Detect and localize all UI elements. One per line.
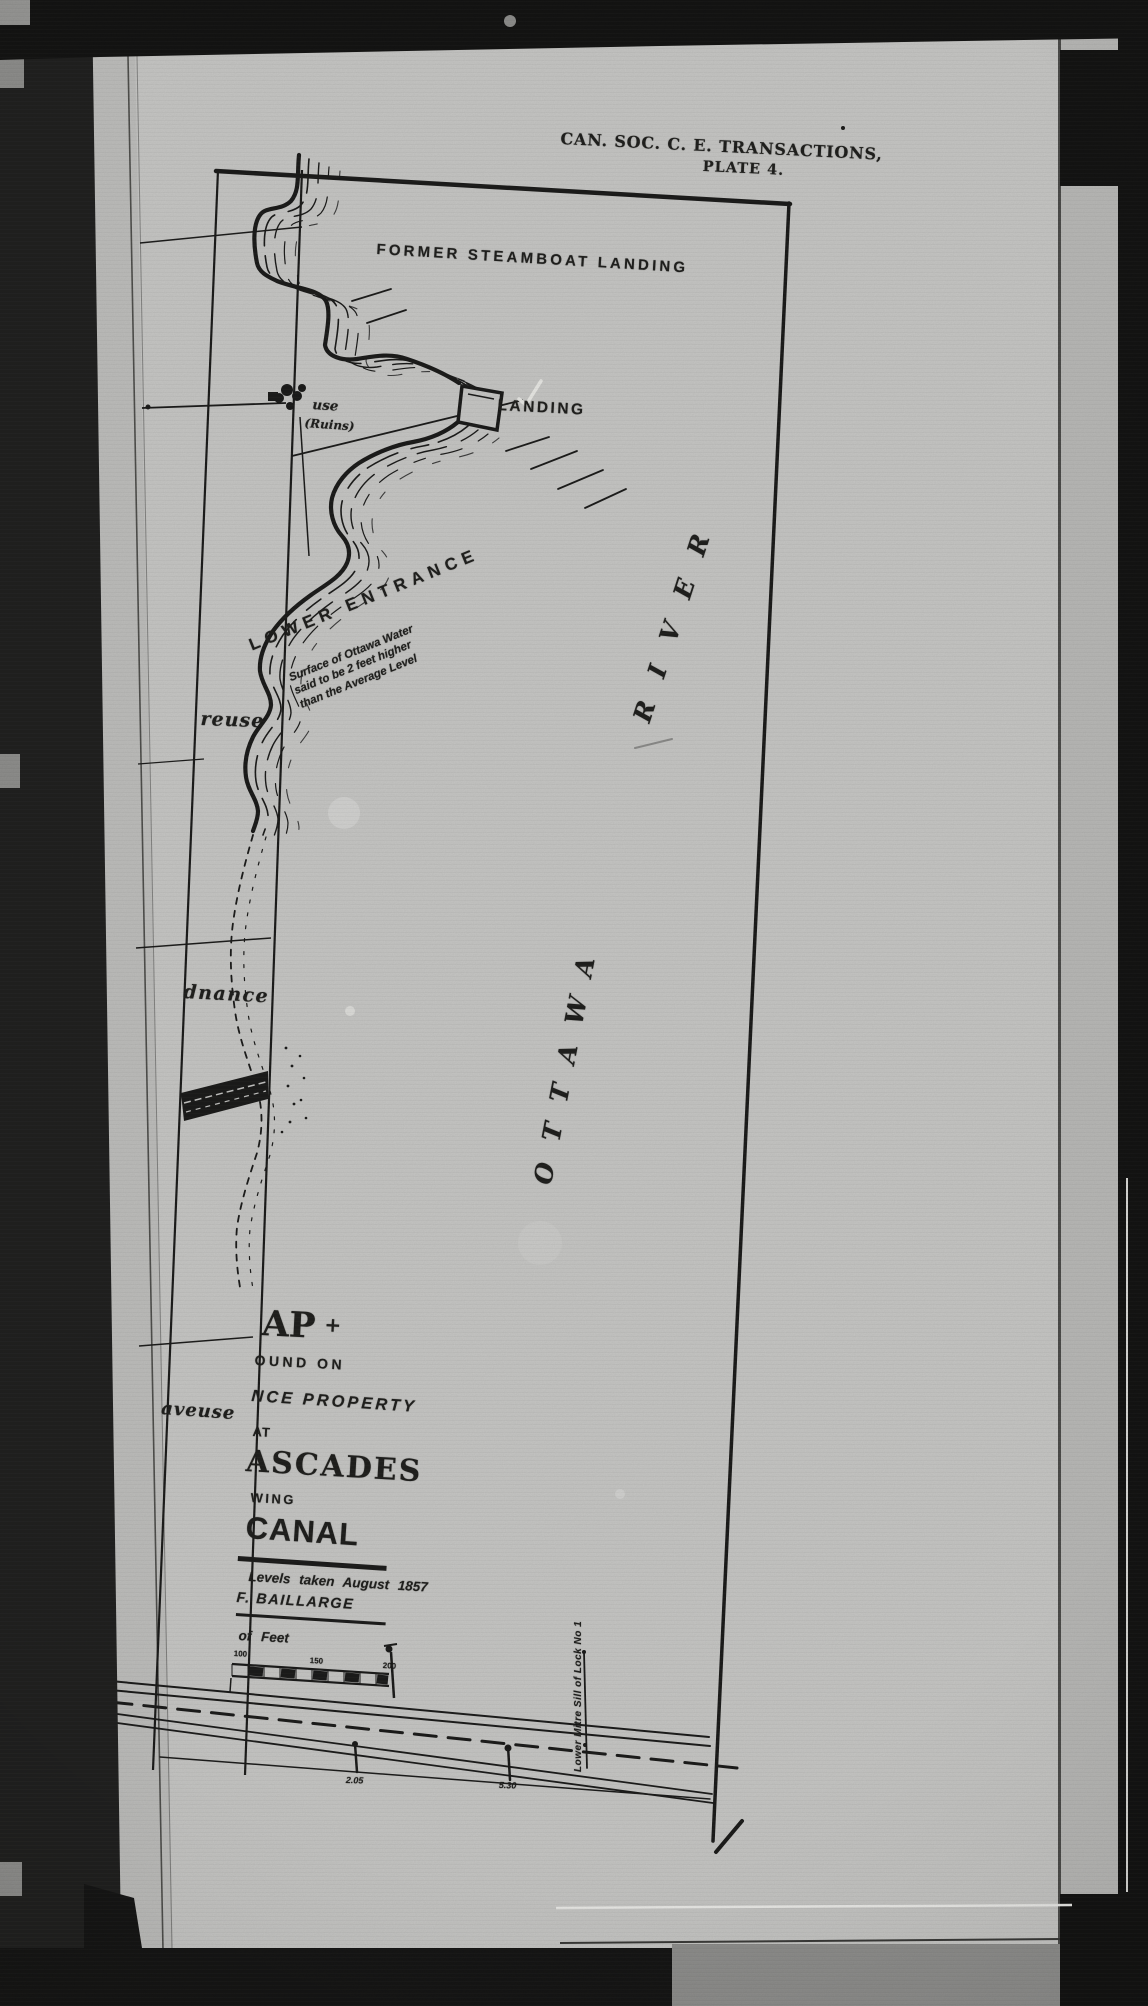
title-canal: CANAL [245, 1510, 361, 1553]
label-cutoff-1: reuse [200, 708, 264, 732]
scanned-map-page: CAN. SOC. C. E. TRANSACTIONS, PLATE 4. F… [0, 0, 1148, 2006]
scale-tick-label-2: 150 [310, 1656, 324, 1666]
scale-tick-label-1: 100 [234, 1649, 248, 1659]
level-figure-1: 2.05 [346, 1775, 364, 1786]
title-map-word: AP+ [261, 1303, 342, 1348]
level-figure-2: 5.30 [499, 1780, 517, 1791]
label-lock-sill-note: Lower Mitre Sill of Lock No 1 [573, 1621, 584, 1772]
title-map-word-text: AP [261, 1303, 317, 1347]
title-showing: WING [250, 1490, 296, 1507]
label-cutoff-2: dnance [183, 981, 270, 1007]
title-at: AT [252, 1424, 271, 1440]
title-map-cross-symbol: + [324, 1312, 342, 1337]
label-house-ruins-top: use [312, 397, 339, 415]
scale-caption: of Feet [238, 1628, 289, 1646]
scale-tick-label-3: 200 [383, 1661, 397, 1671]
